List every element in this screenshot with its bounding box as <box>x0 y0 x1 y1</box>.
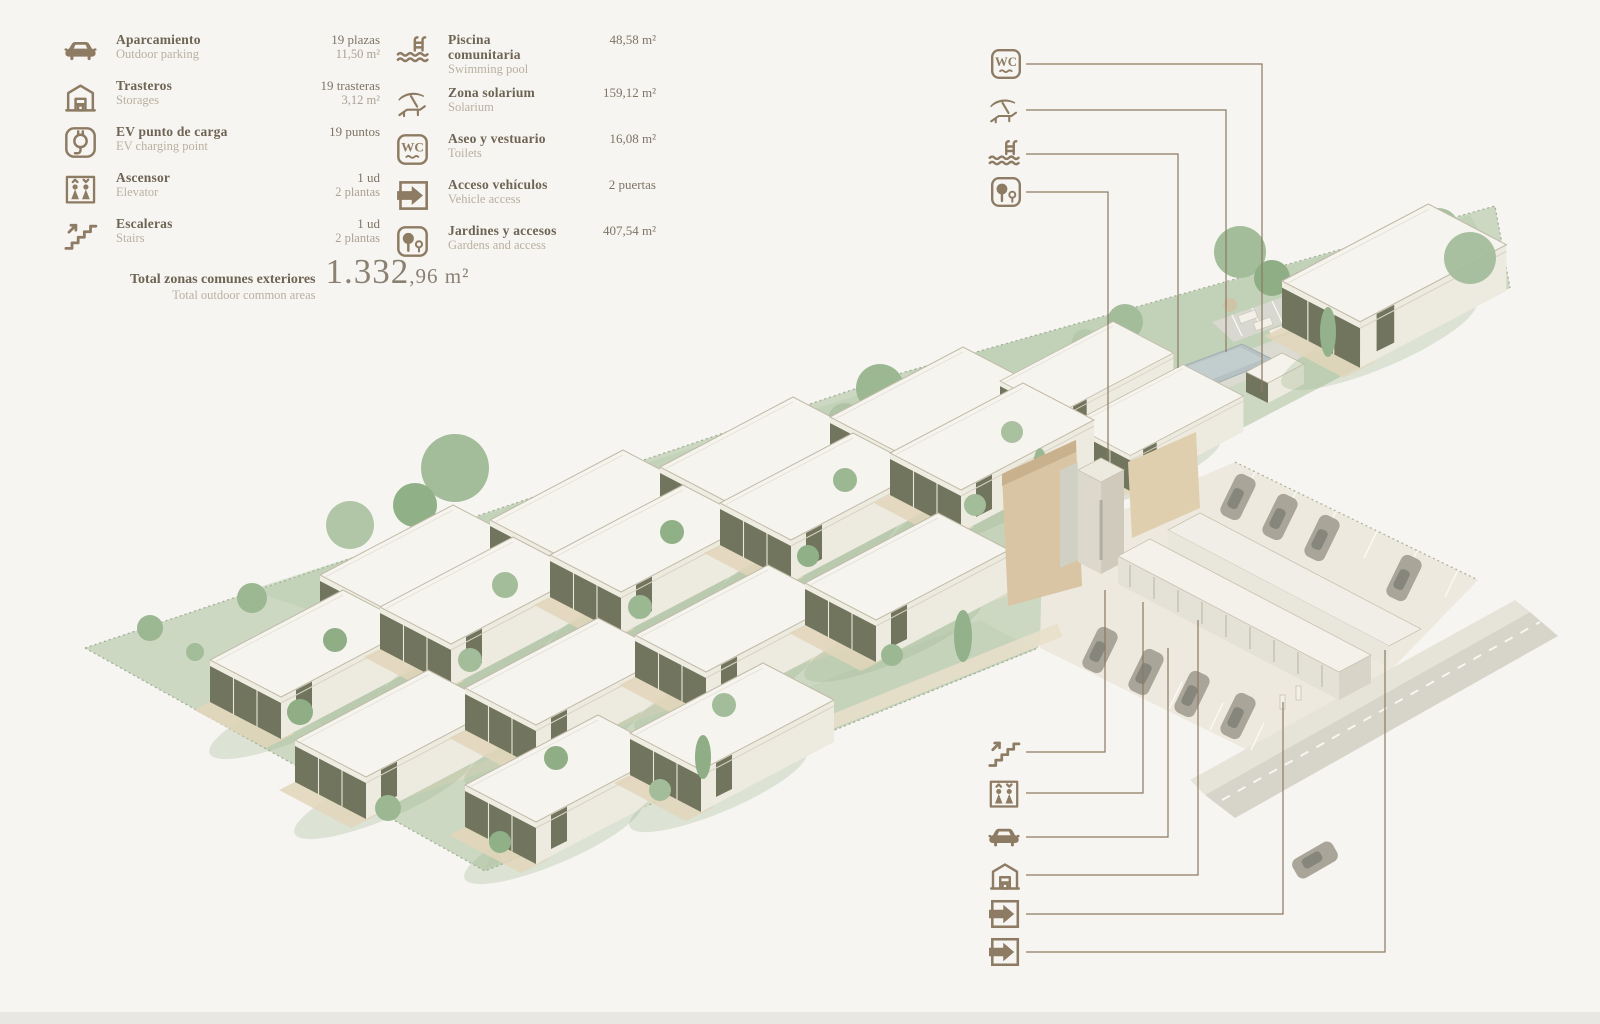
stairs-icon <box>62 216 99 253</box>
elevator-icon <box>62 170 99 207</box>
legend-row: Escaleras Stairs 1 ud 2 plantas <box>62 216 380 253</box>
legend-row: Zona solarium Solarium 159,12 m² <box>394 85 656 122</box>
legend-column-1: Aparcamiento Outdoor parking 19 plazas 1… <box>62 32 380 260</box>
legend-row: Trasteros Storages 19 trasteras 3,12 m² <box>62 78 380 115</box>
legend: Aparcamiento Outdoor parking 19 plazas 1… <box>62 32 642 260</box>
page-edge-strip <box>0 1012 1600 1024</box>
storage-icon <box>987 857 1023 893</box>
gate-post <box>1296 686 1301 700</box>
solarium-icon <box>986 92 1022 128</box>
access-icon <box>394 177 431 214</box>
total-label-es: Total zonas comunes exteriores <box>130 272 315 288</box>
wc-icon <box>988 46 1024 82</box>
legend-column-2: Piscina comunitaria Swimming pool 48,58 … <box>394 32 656 260</box>
total-common-areas: Total zonas comunes exteriores Total out… <box>130 252 469 303</box>
legend-row: Aseo y vestuario Toilets 16,08 m² <box>394 131 656 168</box>
total-label-en: Total outdoor common areas <box>130 288 315 303</box>
pool-icon <box>986 136 1022 172</box>
parasol <box>1223 298 1237 312</box>
total-value: 1.332,96 m² <box>325 252 469 292</box>
legend-row: EV punto de carga EV charging point 19 p… <box>62 124 380 161</box>
storage-icon <box>62 78 99 115</box>
elevator-tower <box>1060 458 1124 574</box>
legend-row: Acceso vehículos Vehicle access 2 puerta… <box>394 177 656 214</box>
car-icon <box>62 32 99 69</box>
gardens-icon <box>988 174 1024 210</box>
wc-icon <box>394 131 431 168</box>
stairs-icon <box>986 734 1022 770</box>
car-on-road <box>1290 839 1341 881</box>
access-icon <box>986 896 1022 932</box>
pool-icon <box>394 32 431 69</box>
legend-row: Ascensor Elevator 1 ud 2 plantas <box>62 170 380 207</box>
elevator-icon <box>986 775 1022 811</box>
solarium-icon <box>394 85 431 122</box>
site-plan-page: WC Aparcamiento Outdoor parking 19 plaza… <box>0 0 1600 1024</box>
car-icon <box>986 819 1022 855</box>
legend-row: Aparcamiento Outdoor parking 19 plazas 1… <box>62 32 380 69</box>
ev-icon <box>62 124 99 161</box>
legend-row: Piscina comunitaria Swimming pool 48,58 … <box>394 32 656 76</box>
access-icon <box>986 934 1022 970</box>
